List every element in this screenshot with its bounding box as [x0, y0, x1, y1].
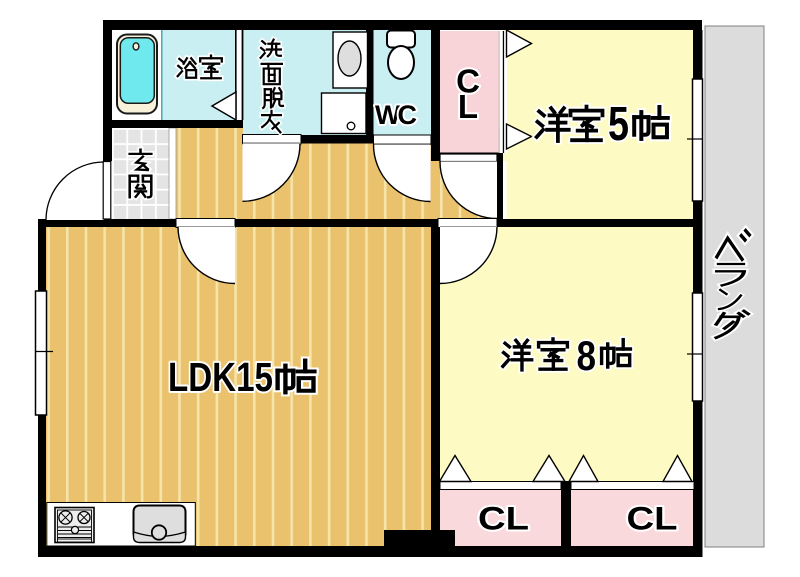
svg-text:LDK15: LDK15 — [168, 354, 273, 400]
svg-text:5: 5 — [608, 98, 629, 151]
svg-text:WC: WC — [375, 100, 417, 130]
svg-text:CL: CL — [478, 501, 529, 537]
svg-text:L: L — [458, 88, 478, 125]
svg-text:8: 8 — [577, 332, 597, 379]
svg-text:CL: CL — [627, 501, 678, 537]
